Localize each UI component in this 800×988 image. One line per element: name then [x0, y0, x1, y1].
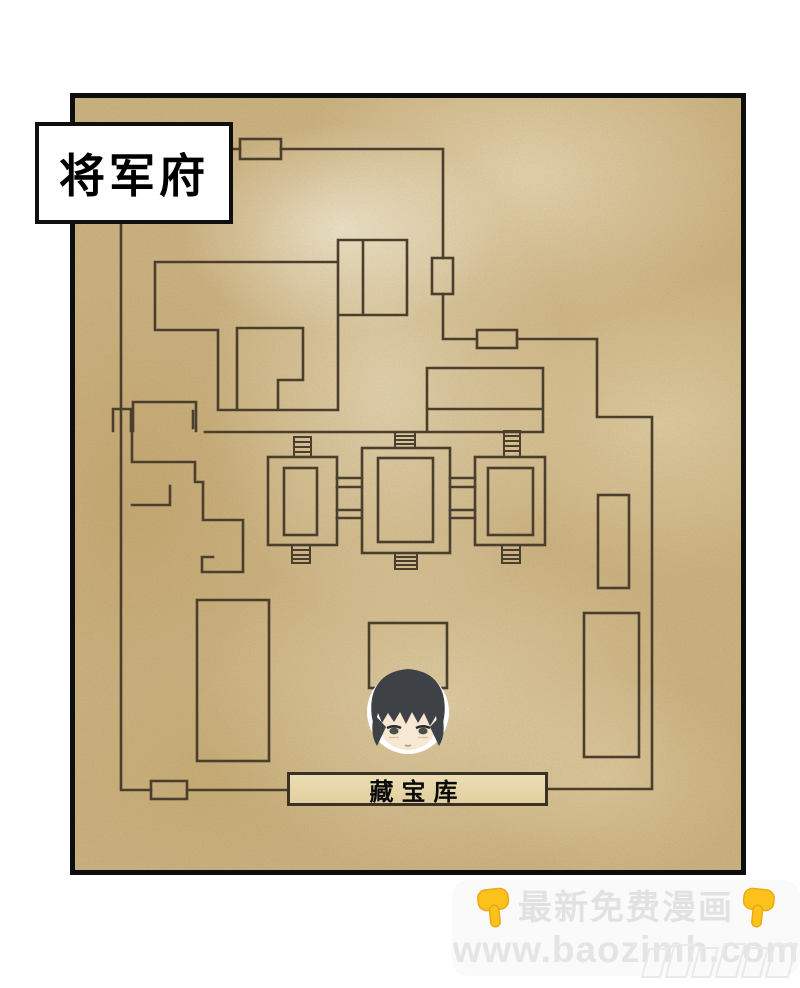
comic-page: 将军府 藏宝库 最新免费漫画 www.baozimh.com	[0, 0, 800, 988]
treasure-vault-text: 藏宝库	[370, 772, 466, 807]
pointing-down-hand-icon	[474, 884, 514, 932]
pointing-down-hand-icon	[738, 884, 778, 932]
watermark-slogan: 最新免费漫画	[518, 891, 734, 925]
watermark-row1: 最新免费漫画	[476, 886, 776, 930]
illegible-outline-stamp	[641, 946, 798, 978]
map-title-box: 将军府	[35, 122, 233, 224]
treasure-vault-box: 藏宝库	[287, 772, 548, 806]
map-title-text: 将军府	[59, 140, 209, 206]
